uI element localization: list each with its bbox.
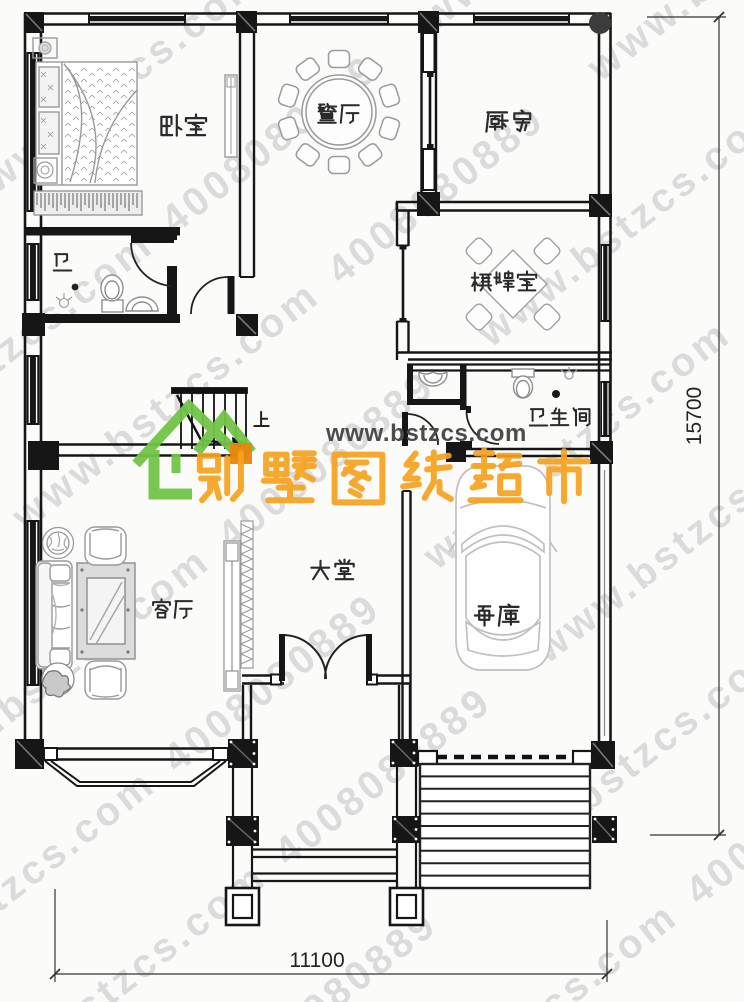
svg-text:11100: 11100 xyxy=(289,949,344,972)
svg-text:15700: 15700 xyxy=(683,387,706,445)
svg-text:www.bstzcs.com: www.bstzcs.com xyxy=(325,420,527,447)
